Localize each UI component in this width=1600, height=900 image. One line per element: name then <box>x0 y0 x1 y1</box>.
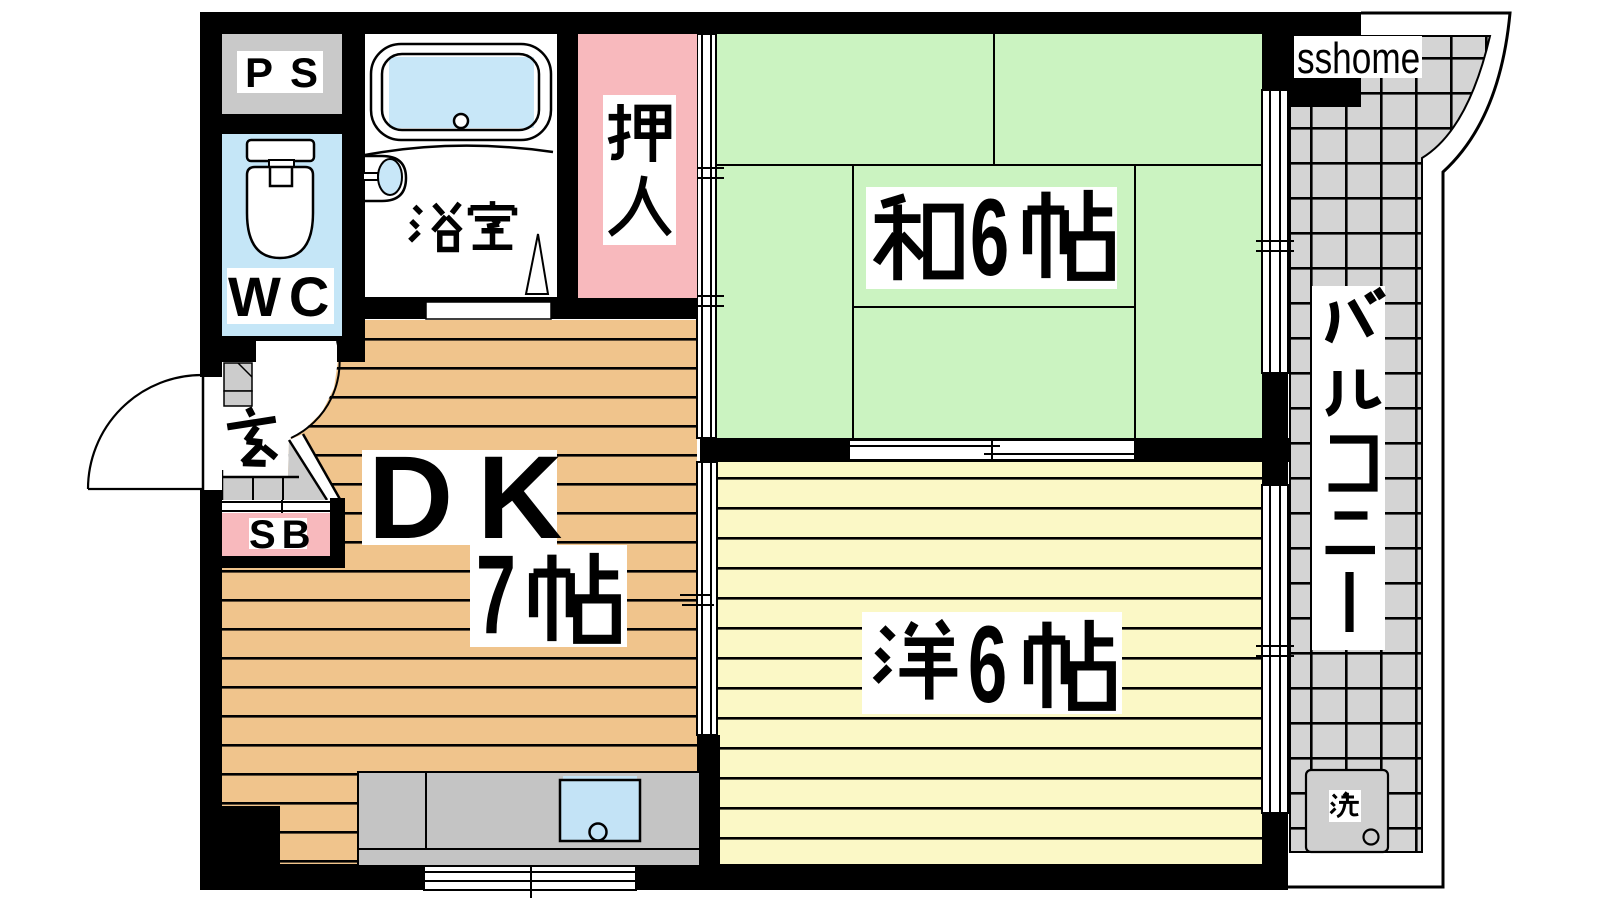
svg-text:WC: WC <box>228 265 337 328</box>
svg-text:7: 7 <box>476 532 516 657</box>
svg-text:SB: SB <box>249 513 317 557</box>
svg-text:PS: PS <box>245 49 335 96</box>
svg-text:sshome: sshome <box>1297 34 1420 83</box>
svg-text:6: 6 <box>970 175 1009 299</box>
svg-text:6: 6 <box>968 602 1007 726</box>
